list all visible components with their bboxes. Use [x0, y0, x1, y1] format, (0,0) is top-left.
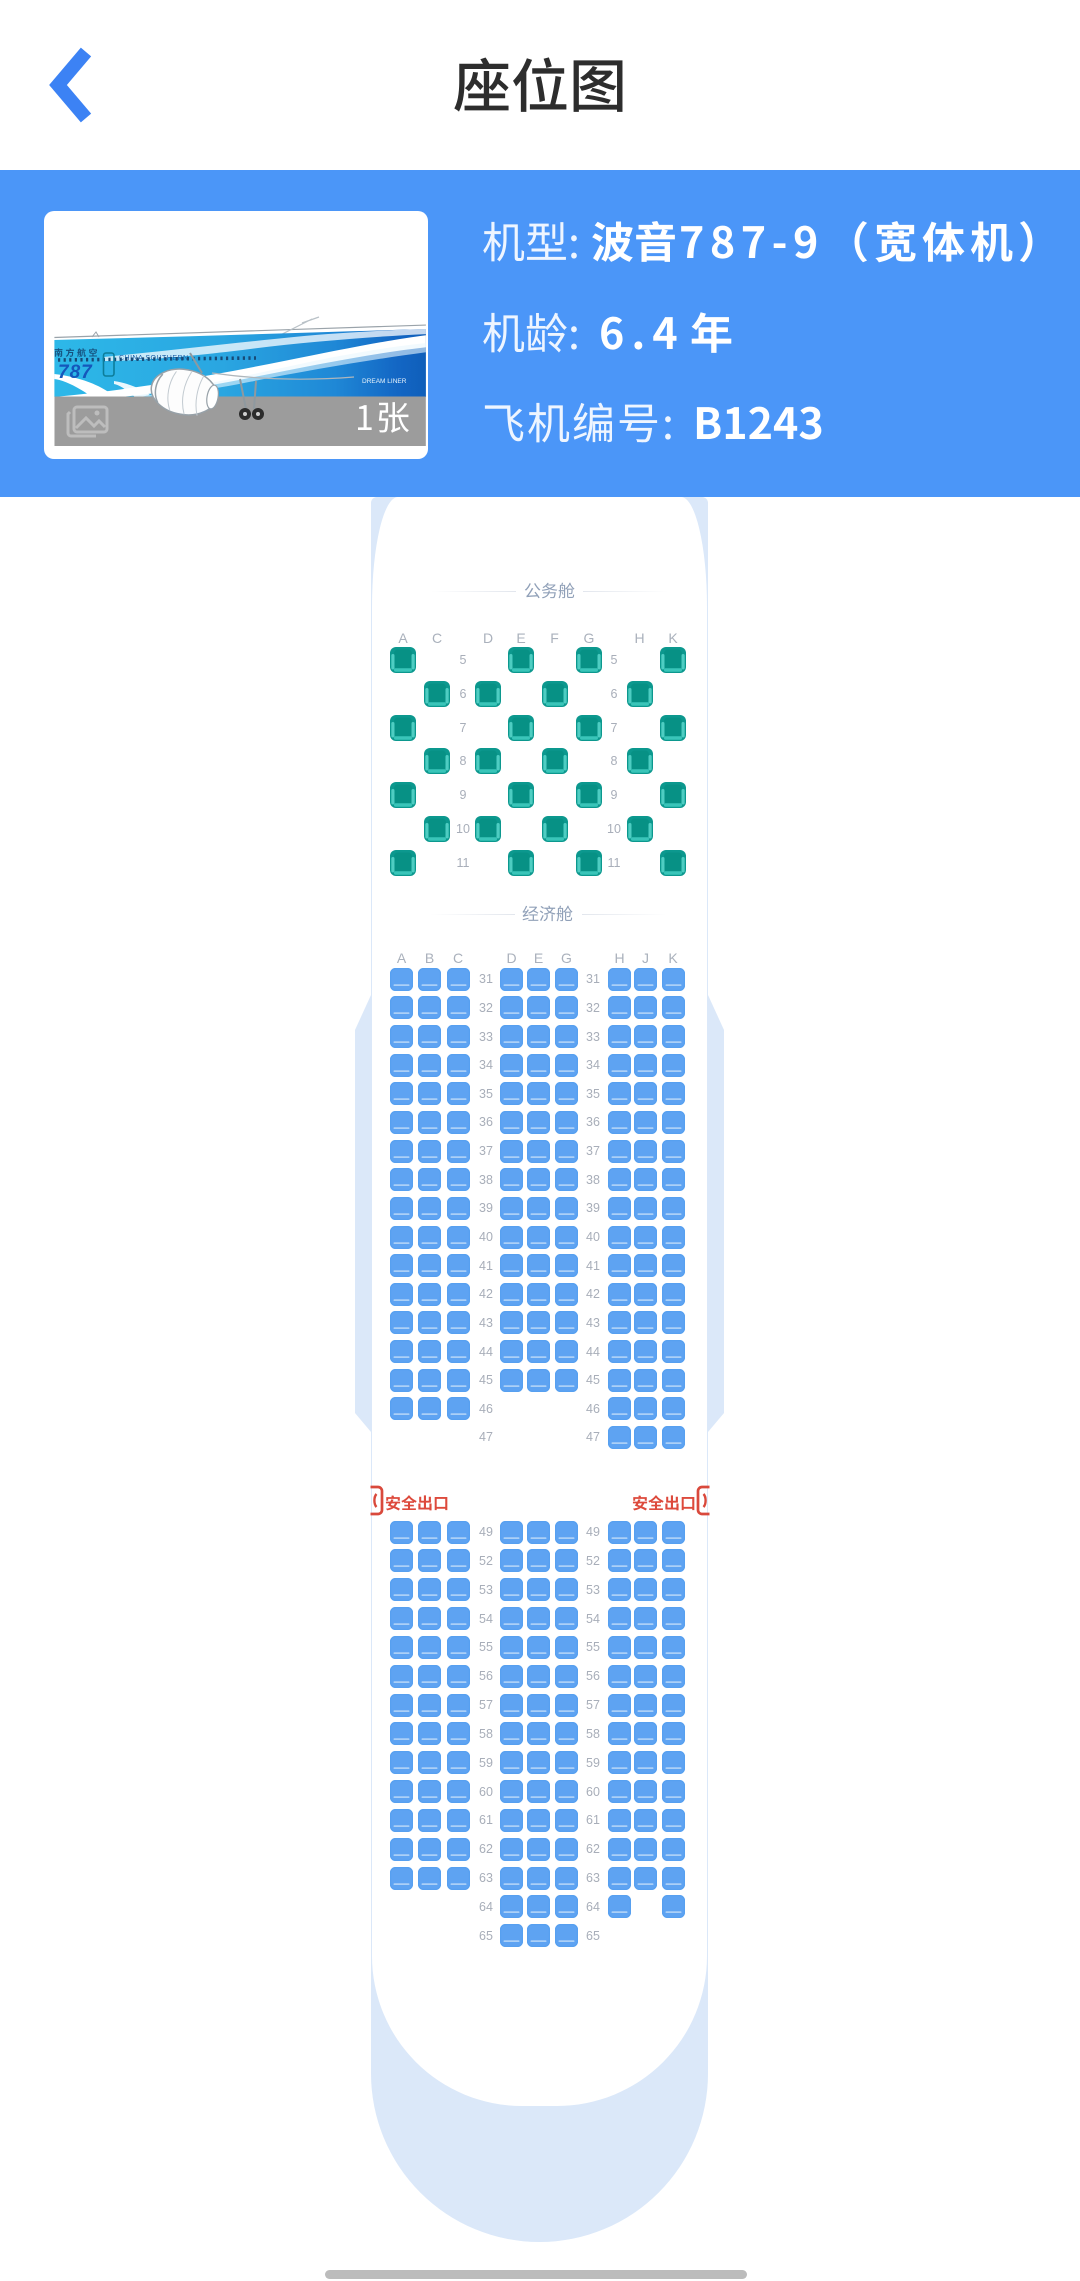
svg-text:787: 787	[58, 362, 93, 383]
svg-text:DREAM LINER: DREAM LINER	[362, 378, 407, 385]
